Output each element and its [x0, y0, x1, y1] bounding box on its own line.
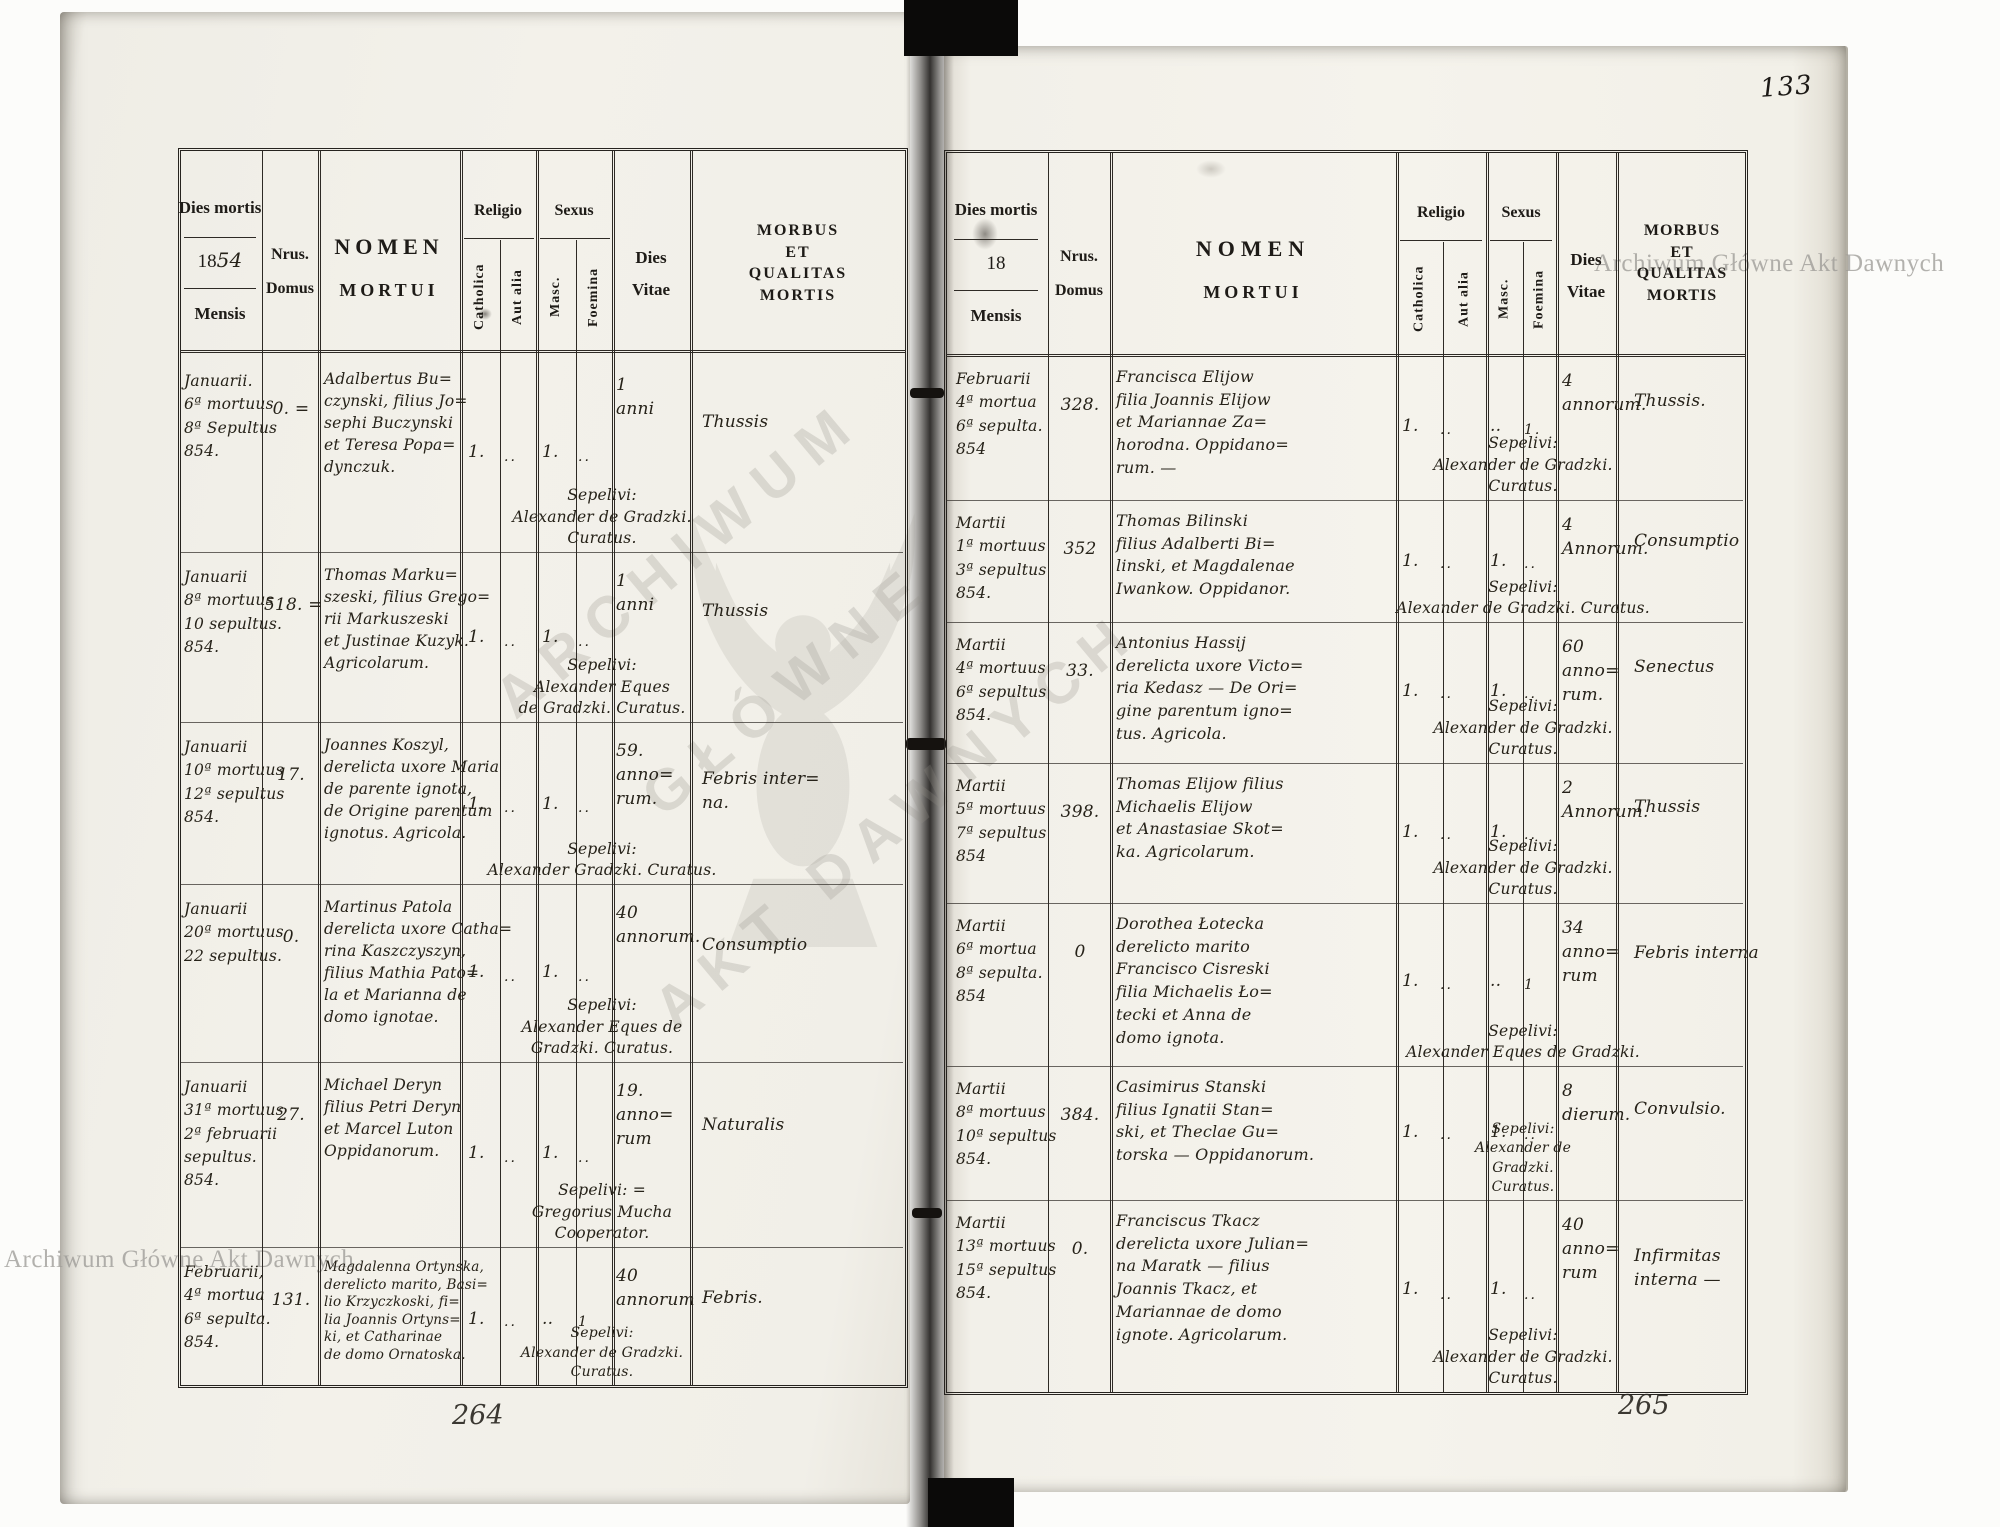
table-rule: [540, 238, 610, 239]
entry-date: Januarii 31ª mortuus 2ª februarii sepult…: [184, 1076, 262, 1192]
entry-catholica-mark: 1.: [1402, 1278, 1432, 1302]
entry-aut-alia-mark: ..: [504, 1149, 530, 1169]
entry-sepelivi: Sepelivi: Alexander Eques de Gradzki.: [1390, 1021, 1656, 1064]
entry-name: Dorothea Łotecka derelicto marito Franci…: [1116, 913, 1342, 1049]
entry-date: Januarii. 6ª mortuus 8ª Sepultus 854.: [184, 370, 262, 463]
row-separator: [180, 1247, 903, 1248]
entry-masc-mark: 1.: [542, 1142, 570, 1166]
row-separator: [946, 763, 1743, 764]
header-nomen: NOMEN: [1110, 236, 1396, 262]
entry-date: Martii 5ª mortuus 7ª sepultus 854: [956, 775, 1056, 868]
entry-cause-of-death: Consumptio: [1634, 530, 1814, 554]
table-rule: [184, 237, 256, 238]
table-rule: [464, 238, 534, 239]
entry-aut-alia-mark: ..: [1440, 976, 1466, 996]
entry-name: Antonius Hassij derelicta uxore Victo= r…: [1116, 632, 1342, 746]
row-separator: [180, 884, 903, 885]
binding-stitch: [912, 1208, 942, 1218]
entry-aut-alia-mark: ..: [504, 968, 530, 988]
entry-sepelivi: Sepelivi: Alexander de Gradzki. Curatus.: [474, 485, 730, 550]
entry-cause-of-death: Febris.: [702, 1287, 902, 1311]
entry-name: Thomas Bilinski filius Adalberti Bi= lin…: [1116, 510, 1342, 601]
entry-aut-alia-mark: ..: [504, 799, 530, 819]
entry-name: Michael Deryn filius Petri Deryn et Marc…: [324, 1074, 466, 1162]
entry-cause-of-death: Senectus: [1634, 656, 1814, 680]
entry-cause-of-death: Convulsio.: [1634, 1098, 1814, 1122]
scanned-register-spread: ARCHIWUM GŁÓWNE AKT DAWNYCH Archiwum Głó…: [0, 0, 2000, 1527]
header-dies-mortis: Dies mortis: [944, 200, 1048, 220]
header-mortui: MORTUI: [318, 280, 460, 301]
entry-aut-alia-mark: ..: [504, 448, 530, 468]
entry-age: 1 anni: [616, 374, 696, 422]
register-entry: Martii 1ª mortuus 3ª sepultus 854. 352 T…: [944, 504, 1745, 620]
entry-date: Februarii 4ª mortua 6ª sepulta. 854: [956, 368, 1056, 461]
header-aut-alia: Aut alia: [500, 246, 536, 348]
entry-foemina-mark: ..: [578, 968, 604, 988]
header-sexus: Sexus: [536, 202, 612, 220]
entry-catholica-mark: 1.: [1402, 970, 1432, 994]
binding-stitch: [910, 388, 944, 398]
entry-foemina-mark: ..: [578, 633, 604, 653]
entry-foemina-mark: ..: [578, 799, 604, 819]
entry-cause-of-death: Thussis: [702, 600, 902, 624]
entry-name: Adalbertus Bu= czynski, filius Jo= sephi…: [324, 368, 466, 478]
entry-cause-of-death: Naturalis: [702, 1114, 902, 1138]
row-separator: [180, 1062, 903, 1063]
entry-catholica-mark: 1.: [468, 793, 498, 817]
entry-aut-alia-mark: ..: [504, 633, 530, 653]
entry-age: 59. anno= rum.: [616, 740, 696, 811]
entry-sepelivi: Sepelivi: Alexander de Gradzki. Curatus.: [1390, 433, 1656, 498]
entry-sepelivi: Sepelivi: Alexander de Gradzki. Curatus.: [1390, 1120, 1656, 1198]
entry-house-number: 0.: [264, 926, 318, 950]
entry-catholica-mark: 1.: [468, 961, 498, 985]
entry-sepelivi: Sepelivi: Alexander de Gradzki. Curatus.: [1390, 696, 1656, 761]
entry-cause-of-death: Thussis: [1634, 796, 1814, 820]
year-handwritten: 54: [217, 248, 243, 272]
row-separator: [946, 1200, 1743, 1201]
entry-foemina-mark: ..: [1524, 555, 1550, 575]
entry-cause-of-death: Thussis.: [1634, 390, 1814, 414]
header-catholica: Catholica: [460, 246, 500, 348]
header-mensis: Mensis: [944, 306, 1048, 326]
entry-house-number: 398.: [1050, 801, 1110, 825]
table-rule: [1400, 240, 1482, 241]
header-year: 18: [944, 248, 1048, 276]
entry-sepelivi: Sepelivi: Alexander Eques de Gradzki. Cu…: [474, 995, 730, 1060]
entry-catholica-mark: 1.: [468, 441, 498, 465]
entry-cause-of-death: Infirmitas interna —: [1634, 1245, 1814, 1293]
entry-house-number: 27.: [264, 1104, 318, 1128]
header-vitae: Vitae: [1556, 282, 1616, 302]
entry-house-number: 131.: [264, 1289, 318, 1313]
entry-name: Joannes Koszyl, derelicta uxore Maria de…: [324, 734, 466, 844]
entry-house-number: 352: [1050, 538, 1110, 562]
entry-date: Martii 6ª mortua 8ª sepulta. 854: [956, 915, 1056, 1008]
header-dies-mortis: Dies mortis: [178, 198, 262, 218]
header-masc: Masc.: [536, 246, 576, 348]
entry-house-number: 33.: [1050, 660, 1110, 684]
entry-cause-of-death: Consumptio: [702, 934, 902, 958]
register-entry: Martii 4ª mortuus 6ª sepultus 854. 33. A…: [944, 626, 1745, 761]
entry-date: Januarii 8ª mortuus 10 sepultus. 854.: [184, 566, 262, 659]
entry-sepelivi: Sepelivi: Alexander de Gradzki. Curatus.: [1390, 1325, 1656, 1390]
entry-age: 40 annorum.: [616, 902, 696, 950]
entry-foemina-mark: ..: [578, 448, 604, 468]
entry-foemina-mark: ..: [1524, 1286, 1550, 1306]
entry-house-number: 328.: [1050, 394, 1110, 418]
binding-cap-bottom: [928, 1478, 1014, 1527]
entry-sepelivi: Sepelivi: = Gregorius Mucha Cooperator.: [474, 1180, 730, 1245]
register-entry: Martii 5ª mortuus 7ª sepultus 854 398. T…: [944, 767, 1745, 901]
header-nomen: NOMEN: [318, 234, 460, 260]
header-domus: Domus: [1048, 282, 1110, 300]
entry-house-number: 0: [1050, 941, 1110, 965]
entry-date: Januarii 20ª mortuus 22 sepultus.: [184, 898, 262, 968]
entry-aut-alia-mark: ..: [1440, 555, 1466, 575]
table-rule: [184, 288, 256, 289]
entry-name: Martinus Patola derelicta uxore Catha= r…: [324, 896, 466, 1028]
header-dies: Dies: [612, 248, 690, 268]
header-mortui: MORTUI: [1110, 282, 1396, 303]
header-religio: Religio: [460, 202, 536, 220]
row-separator: [946, 903, 1743, 904]
entry-sepelivi: Sepelivi: Alexander de Gradzki. Curatus.: [1390, 577, 1656, 620]
entry-name: Thomas Elijow filius Michaelis Elijow et…: [1116, 773, 1342, 864]
register-entry: Martii 6ª mortua 8ª sepulta. 854 0 Dorot…: [944, 907, 1745, 1064]
entry-date: Januarii 10ª mortuus 12ª sepultus 854.: [184, 736, 262, 829]
entry-age: 40 annorum: [616, 1265, 696, 1313]
page-number: 133: [1759, 70, 1814, 104]
entry-name: Franciscus Tkacz derelicta uxore Julian=…: [1116, 1210, 1342, 1346]
entry-age: 1 anni: [616, 570, 696, 618]
entry-house-number: 384.: [1050, 1104, 1110, 1128]
entry-name: Magdalenna Ortynska, derelicto marito, B…: [324, 1259, 466, 1364]
year-printed: 18: [987, 253, 1006, 274]
table-rule: [180, 350, 906, 353]
register-entry: Martii 8ª mortuus 10ª sepultus 854. 384.…: [944, 1070, 1745, 1198]
entry-masc-mark: 1.: [1490, 1278, 1518, 1302]
entry-age: 19. anno= rum: [616, 1080, 696, 1151]
entry-date: Martii 1ª mortuus 3ª sepultus 854.: [956, 512, 1056, 605]
entry-catholica-mark: 1.: [1402, 550, 1432, 574]
entry-house-number: 0.: [1050, 1238, 1110, 1262]
entry-cause-of-death: Febris interna: [1634, 942, 1814, 966]
entry-masc-mark: 1.: [542, 441, 570, 465]
header-nrus: Nrus.: [1048, 248, 1110, 266]
entry-masc-mark: 1.: [542, 626, 570, 650]
entry-sepelivi: Sepelivi: Alexander Eques de Gradzki. Cu…: [474, 655, 730, 720]
header-catholica: Catholica: [1396, 248, 1443, 350]
register-entry: Januarii 31ª mortuus 2ª februarii sepult…: [178, 1068, 905, 1245]
row-separator: [180, 552, 903, 553]
header-nrus: Nrus.: [262, 246, 318, 264]
header-vitae: Vitae: [612, 280, 690, 300]
entry-date: Februarii, 4ª mortua 6ª sepulta. 854.: [184, 1261, 262, 1354]
entry-sepelivi: Sepelivi: Alexander de Gradzki. Curatus.: [1390, 836, 1656, 901]
header-morbus: MORBUS ET QUALITAS MORTIS: [1616, 220, 1748, 306]
entry-cause-of-death: Thussis: [702, 411, 902, 435]
entry-masc-mark: ..: [1490, 970, 1518, 994]
entry-catholica-mark: 1.: [468, 626, 498, 650]
header-dies: Dies: [1556, 250, 1616, 270]
register-entry: Januarii 10ª mortuus 12ª sepultus 854. 1…: [178, 728, 905, 882]
entry-aut-alia-mark: ..: [1440, 1286, 1466, 1306]
entry-foemina-mark: 1: [1524, 976, 1550, 996]
register-entry: Januarii 20ª mortuus 22 sepultus. 0. Mar…: [178, 890, 905, 1060]
entry-name: Francisca Elijow filia Joannis Elijow et…: [1116, 366, 1342, 480]
header-morbus: MORBUS ET QUALITAS MORTIS: [690, 220, 906, 306]
entry-date: Martii 8ª mortuus 10ª sepultus 854.: [956, 1078, 1056, 1171]
entry-masc-mark: 1.: [1490, 550, 1518, 574]
header-mensis: Mensis: [178, 304, 262, 324]
header-aut-alia: Aut alia: [1443, 248, 1486, 350]
row-separator: [946, 622, 1743, 623]
header-foemina: Foemina: [576, 246, 612, 348]
entry-house-number: 17.: [264, 764, 318, 788]
entry-masc-mark: 1.: [542, 961, 570, 985]
register-entry: Februarii 4ª mortua 6ª sepulta. 854 328.…: [944, 360, 1745, 498]
entry-name: Casimirus Stanski filius Ignatii Stan= s…: [1116, 1076, 1342, 1167]
binding-cap-top: [904, 0, 1018, 56]
header-foemina: Foemina: [1523, 248, 1556, 350]
table-rule: [946, 354, 1746, 357]
register-entry: Januarii. 6ª mortuus 8ª Sepultus 854. 0.…: [178, 362, 905, 550]
header-domus: Domus: [262, 280, 318, 298]
entry-name: Thomas Marku= szeski, filius Grego= rii …: [324, 564, 466, 674]
register-entry: Martii 13ª mortuus 15ª sepultus 854. 0. …: [944, 1204, 1745, 1390]
header-masc: Masc.: [1486, 248, 1523, 350]
entry-cause-of-death: Febris inter= na.: [702, 768, 902, 816]
entry-house-number: 518. =: [264, 594, 318, 618]
entry-date: Martii 4ª mortuus 6ª sepultus 854.: [956, 634, 1056, 727]
year-printed: 18: [198, 251, 217, 272]
row-separator: [946, 1066, 1743, 1067]
entry-date: Martii 13ª mortuus 15ª sepultus 854.: [956, 1212, 1056, 1305]
header-year: 1854: [178, 246, 262, 274]
register-entry: Februarii, 4ª mortua 6ª sepulta. 854. 13…: [178, 1253, 905, 1383]
entry-sepelivi: Sepelivi: Alexander Gradzki. Curatus.: [474, 839, 730, 882]
header-religio: Religio: [1396, 204, 1486, 222]
row-separator: [180, 722, 903, 723]
register-entry: Januarii 8ª mortuus 10 sepultus. 854. 51…: [178, 558, 905, 720]
entry-catholica-mark: 1.: [468, 1142, 498, 1166]
entry-masc-mark: 1.: [542, 793, 570, 817]
row-separator: [946, 500, 1743, 501]
table-rule: [954, 290, 1038, 291]
header-sexus: Sexus: [1486, 204, 1556, 222]
table-rule: [1490, 240, 1552, 241]
left-folio-number: 264: [452, 1400, 504, 1431]
entry-house-number: 0. =: [264, 398, 318, 422]
entry-sepelivi: Sepelivi: Alexander de Gradzki. Curatus.: [474, 1324, 730, 1383]
entry-foemina-mark: ..: [578, 1149, 604, 1169]
table-rule: [954, 239, 1038, 240]
